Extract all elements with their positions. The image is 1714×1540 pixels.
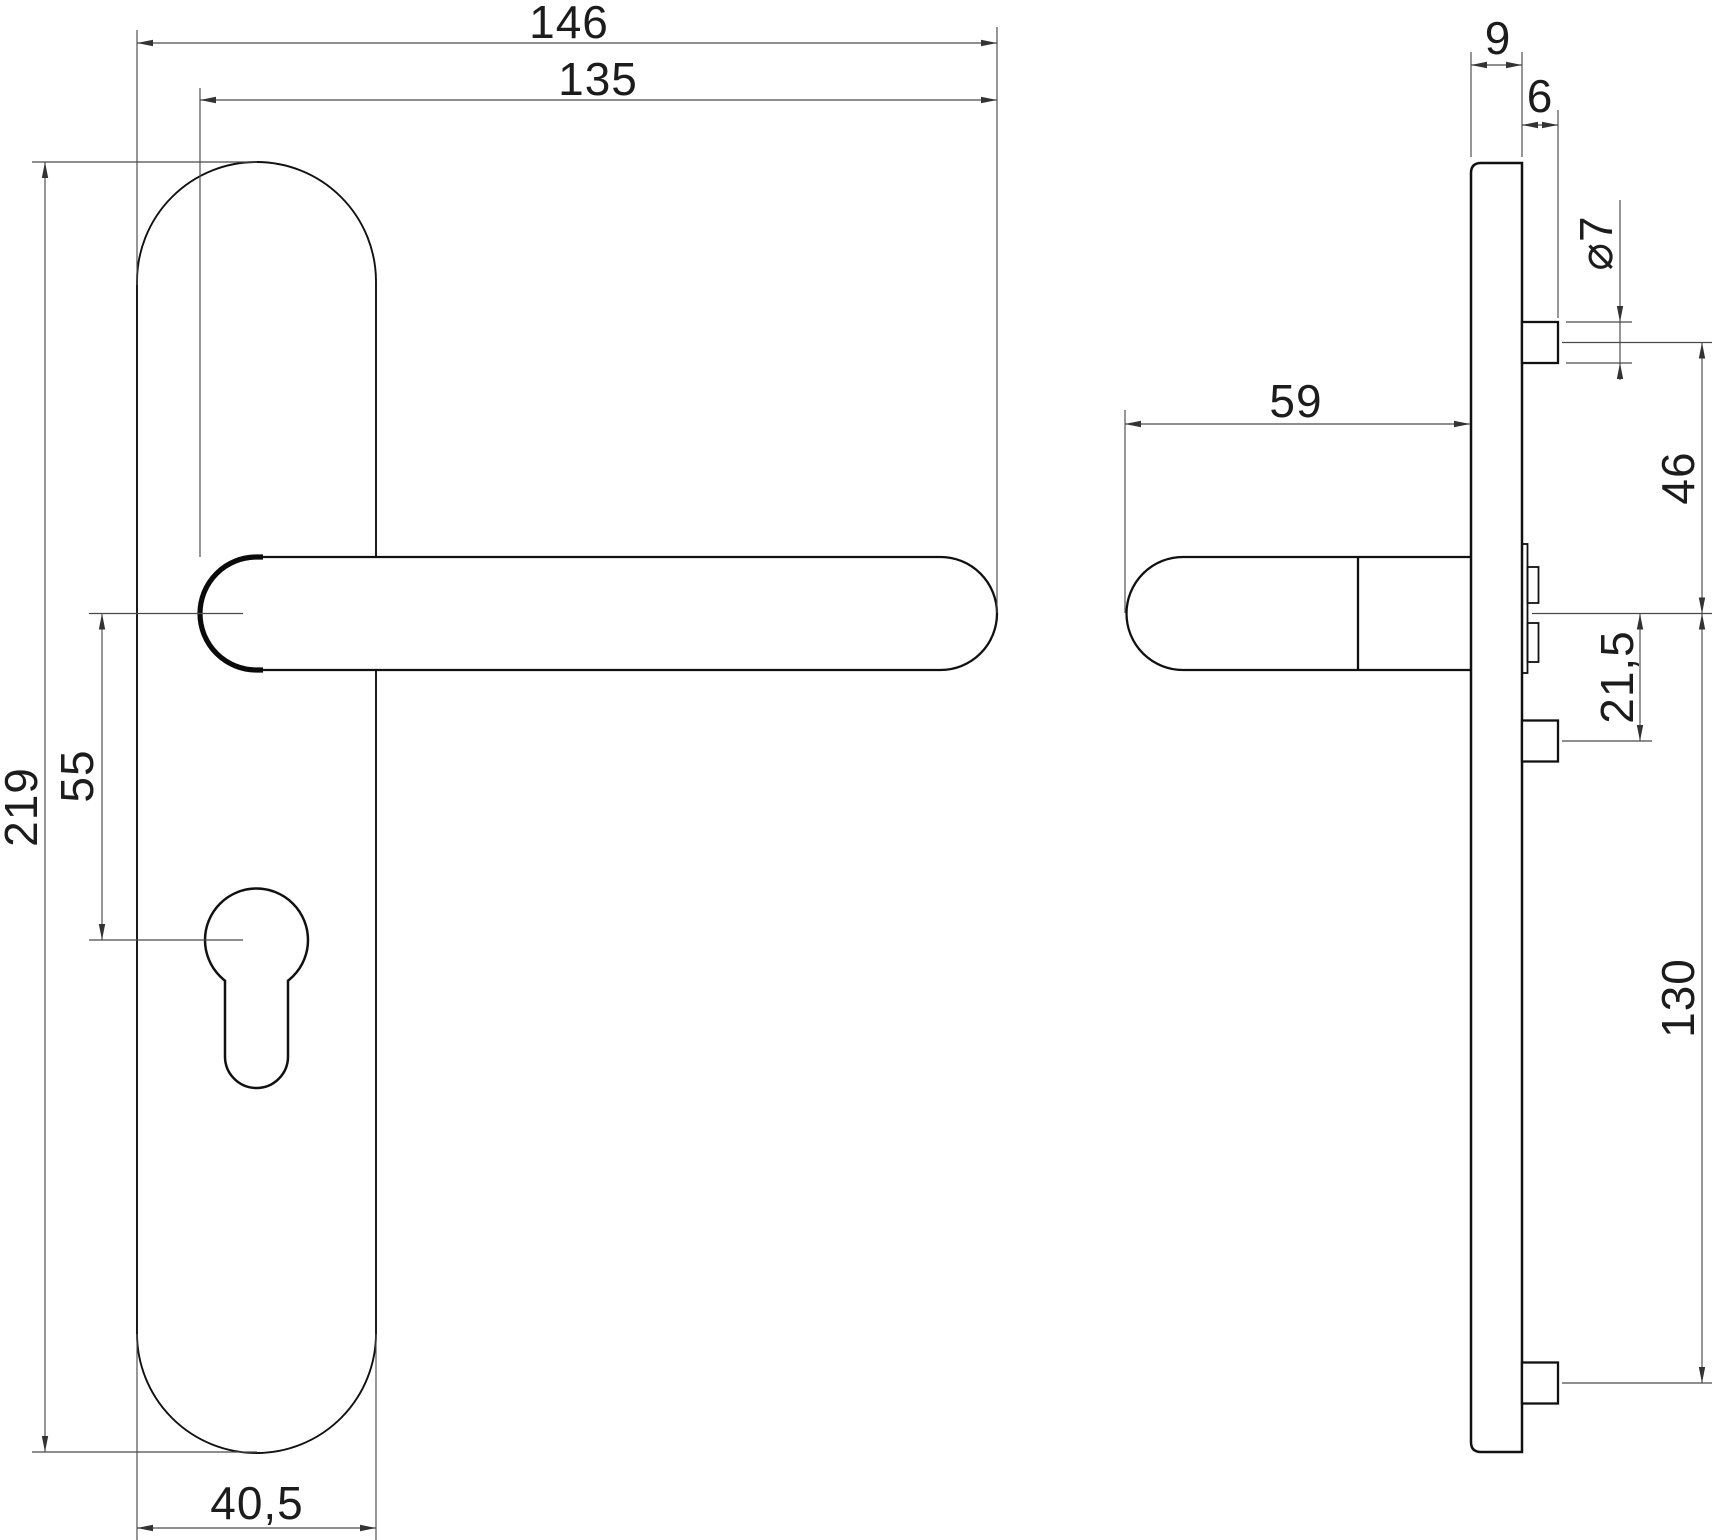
spring-clip-lower — [1528, 623, 1539, 662]
dimension-top-bolt-to-centre: 46 — [1652, 343, 1705, 614]
dim-label-130: 130 — [1652, 958, 1704, 1038]
dimension-bolt-protrusion: 6 — [1522, 70, 1558, 318]
side-backplate — [1471, 163, 1522, 1452]
fixing-bolt-bottom — [1522, 1363, 1558, 1404]
side-view — [1127, 163, 1559, 1452]
dim-label-9: 9 — [1485, 12, 1512, 64]
dim-label-diameter-7: ⌀7 — [1570, 215, 1622, 270]
drawing-canvas: 146 135 219 55 — [0, 0, 1714, 1540]
dim-label-46: 46 — [1652, 451, 1704, 504]
dimension-centre-to-bottom-bolt: 130 — [1652, 614, 1705, 1384]
dimension-drawing: 146 135 219 55 — [0, 0, 1714, 1540]
dimension-centre-to-middle-bolt: 21,5 — [1591, 614, 1643, 742]
side-view-dimensions: 9 6 ⌀7 59 — [1125, 12, 1712, 1383]
dimension-plate-thickness: 9 — [1471, 12, 1522, 157]
dim-label-135: 135 — [558, 53, 638, 105]
dimension-handle-depth: 59 — [1125, 375, 1470, 613]
dim-label-55: 55 — [51, 749, 103, 802]
lever-handle — [200, 557, 997, 670]
dim-label-59: 59 — [1269, 375, 1322, 427]
dim-label-146: 146 — [529, 0, 609, 48]
dimension-bolt-diameter: ⌀7 — [1566, 200, 1632, 380]
dim-label-6: 6 — [1527, 70, 1554, 122]
dim-label-219: 219 — [0, 767, 47, 847]
dim-label-40-5: 40,5 — [210, 1477, 304, 1529]
dim-label-21-5: 21,5 — [1591, 630, 1643, 724]
side-handle — [1127, 557, 1472, 670]
backplate-outline — [137, 162, 376, 1453]
spring-clip-upper — [1528, 567, 1539, 603]
front-view — [137, 162, 997, 1453]
fixing-bolt-middle — [1522, 721, 1558, 762]
fixing-bolt-top — [1522, 322, 1558, 363]
